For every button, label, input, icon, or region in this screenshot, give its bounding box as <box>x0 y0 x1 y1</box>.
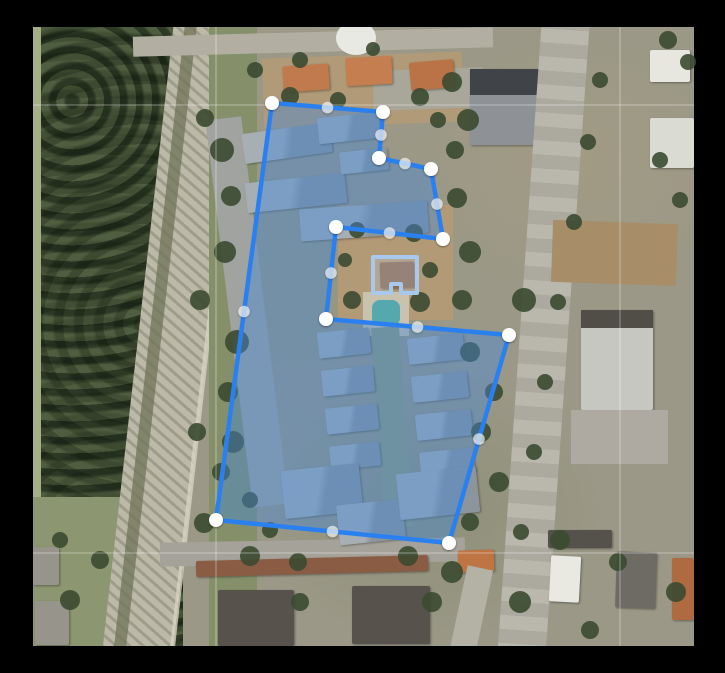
building-white-dome-top <box>336 27 376 55</box>
building-orange-roof-top-2 <box>345 56 392 86</box>
building-dark-roof-bottom-2 <box>352 586 430 644</box>
apartment-building <box>415 409 473 441</box>
apartment-building <box>325 403 379 434</box>
terrain-dirt-field-east <box>551 220 678 286</box>
building-clubhouse-roof <box>380 261 415 288</box>
building-west-edge-1 <box>33 547 59 585</box>
parking-lot-east <box>571 410 668 464</box>
building-orange-roof-top-3 <box>409 59 455 91</box>
apartment-building <box>317 112 381 144</box>
building-dark-southeast <box>548 530 612 548</box>
apartment-building <box>317 327 371 358</box>
building-gray-southeast <box>615 551 657 608</box>
apartment-building <box>396 466 480 520</box>
building-white-northeast-1 <box>650 50 690 82</box>
building-dark-roof-bottom-1 <box>218 590 294 646</box>
apartment-building <box>411 371 469 403</box>
screenshot-frame <box>0 0 725 673</box>
building-white-northeast-2 <box>650 118 694 168</box>
apartment-building <box>336 499 406 546</box>
building-white-southeast <box>549 555 581 603</box>
apartment-building <box>407 333 465 365</box>
apartment-building <box>339 148 389 175</box>
satellite-map[interactable] <box>33 27 694 646</box>
building-orange-southeast <box>672 558 694 620</box>
apartment-building <box>321 365 375 396</box>
building-orange-roof-top-1 <box>282 63 330 92</box>
building-gray-east-roofsection <box>581 310 653 328</box>
swimming-pool <box>372 300 400 326</box>
road-bottom-right-diagonal <box>449 565 493 646</box>
building-west-edge-2 <box>35 601 69 645</box>
